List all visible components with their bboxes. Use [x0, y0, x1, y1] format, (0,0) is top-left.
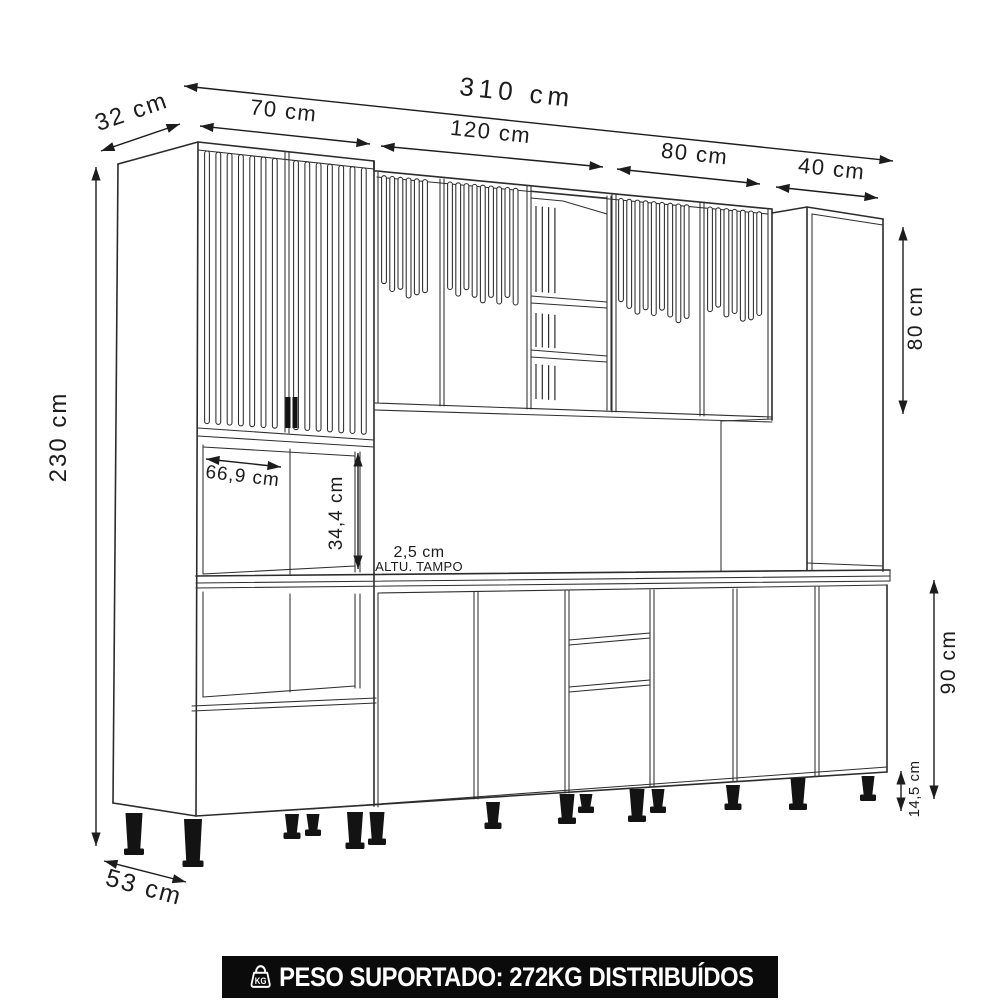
flute-slat: [272, 158, 277, 428]
flute-slat: [676, 204, 681, 323]
flute-slat: [350, 167, 355, 434]
countertop-caption: ALTU. TAMPO: [375, 559, 463, 574]
dimension-annotations: 310 cm 32 cm 70 cm 120 cm 80 cm 40 cm 23…: [45, 71, 960, 911]
cabinet-foot: [184, 819, 202, 861]
cabinet-foot-pad: [628, 816, 646, 823]
flute-slat: [261, 157, 266, 427]
cabinet-foot-pad: [485, 823, 502, 830]
flute-slat: [239, 155, 244, 426]
cabinet-foot-pad: [650, 807, 666, 814]
cabinet-foot: [560, 794, 575, 818]
cabinet-foot-pad: [789, 804, 807, 811]
dimension-label: 34,4 cm: [326, 476, 347, 551]
dimension-label: 310 cm: [458, 71, 576, 113]
flute-slat: [497, 187, 502, 304]
flute-slat: [328, 164, 333, 432]
flute-slat: [724, 209, 729, 317]
cabinet-foot: [862, 776, 875, 795]
flute-slat: [513, 188, 518, 305]
cabinet-foot-pad: [368, 839, 386, 846]
adjustable-feet: [124, 776, 876, 867]
flute-slat: [316, 163, 321, 431]
kg-icon-label: KG: [255, 976, 267, 987]
flute-slat: [732, 209, 737, 313]
dim-top-depth: 32 cm: [92, 87, 180, 151]
cabinet-foot: [126, 813, 143, 849]
cabinet-foot-pad: [558, 818, 576, 825]
flute-slat: [627, 199, 632, 308]
flute-slat: [505, 188, 510, 298]
flute-slat: [472, 184, 477, 297]
cabinet-foot-pad: [860, 795, 876, 802]
dim-total-height: 230 cm: [45, 167, 96, 846]
flute-slat: [749, 211, 754, 320]
door-handle: [293, 397, 298, 428]
cabinet-foot: [652, 789, 665, 807]
flute-slat: [716, 208, 721, 307]
flute-slat: [740, 210, 745, 321]
dimension-label: 32 cm: [92, 87, 172, 137]
flute-slat: [227, 153, 232, 425]
flute-slat: [619, 199, 624, 302]
cabinet-line-art: [113, 142, 890, 867]
dim-upper-height: 80 cm: [903, 227, 927, 414]
cabinet-foot: [791, 778, 806, 804]
flute-slat: [406, 178, 411, 298]
wall-cabinets: [374, 161, 772, 422]
dim-niche-height: 34,4 cm: [326, 453, 358, 569]
cabinet-foot: [726, 785, 740, 804]
cabinet-foot: [370, 812, 385, 839]
base-cabinets: [196, 585, 887, 816]
door-handle: [286, 397, 291, 428]
cabinet-foot: [307, 814, 320, 830]
cabinet-foot-pad: [183, 861, 204, 868]
drawer-stack: [569, 633, 650, 692]
flute-slat: [456, 183, 461, 296]
dimension-label: 80 cm: [904, 286, 927, 351]
dim-base-height: 90 cm: [934, 580, 960, 799]
cabinet-foot: [486, 802, 500, 823]
flute-slat: [708, 207, 713, 312]
cabinet-foot-pad: [305, 830, 321, 837]
dim-mid-section: 120 cm: [381, 115, 603, 167]
flute-slat: [361, 168, 366, 434]
flute-slat: [684, 205, 689, 319]
dim-base-depth: 53 cm: [103, 861, 186, 911]
flute-slat: [294, 161, 299, 430]
countertop: [196, 570, 890, 588]
flute-slat: [651, 202, 656, 316]
flute-slat: [339, 166, 344, 433]
dim-countertop: 2,5 cm ALTU. TAMPO: [375, 544, 463, 574]
flute-slat: [305, 162, 310, 431]
dim-feet-height: 14,5 cm: [901, 761, 923, 818]
dimension-label: 120 cm: [449, 115, 532, 148]
flute-slat: [635, 200, 640, 314]
flute-slat: [480, 185, 485, 303]
flute-slat: [489, 186, 494, 297]
weight-capacity-text: PESO SUPORTADO: 272KG DISTRIBUÍDOS: [279, 962, 753, 993]
cabinet-foot-pad: [578, 807, 594, 814]
flute-slat: [414, 179, 419, 295]
cabinet-foot-pad: [725, 804, 742, 811]
flute-slat: [448, 182, 453, 290]
flute-slat: [660, 202, 665, 310]
flute-slat: [423, 180, 428, 293]
lower-niche: [203, 592, 360, 697]
flute-slat: [390, 177, 395, 292]
cabinet-foot-pad: [124, 849, 144, 856]
weight-capacity-banner: KG PESO SUPORTADO: 272KG DISTRIBUÍDOS: [222, 956, 778, 998]
cabinet-foot-pad: [346, 843, 365, 850]
cabinet-foot: [285, 814, 299, 833]
cabinet-foot: [347, 812, 363, 843]
open-shelf-unit: [531, 191, 611, 410]
flute-slat: [668, 203, 673, 317]
flute-slat: [398, 177, 403, 289]
dimension-label: 14,5 cm: [906, 761, 923, 818]
flute-slat: [757, 212, 762, 316]
cabinet-foot-pad: [284, 833, 301, 840]
fluted-wall-door-pattern: [382, 176, 762, 323]
kg-weight-icon: KG: [247, 961, 275, 993]
bottom-drawer: [192, 698, 376, 711]
dim-niche-width: 66,9 cm: [204, 459, 281, 491]
cabinet-technical-drawing: 310 cm 32 cm 70 cm 120 cm 80 cm 40 cm 23…: [0, 0, 1000, 1000]
cabinet-foot: [580, 794, 593, 807]
cabinet-foot: [630, 789, 645, 816]
dim-tall-right: 40 cm: [776, 153, 878, 198]
flute-slat: [216, 152, 221, 424]
dim-left-section: 70 cm: [200, 94, 370, 144]
flute-slat: [205, 151, 210, 424]
flute-slat: [464, 184, 469, 290]
cabinet-diagram-page: 310 cm 32 cm 70 cm 120 cm 80 cm 40 cm 23…: [0, 0, 1000, 1000]
dimension-label: 230 cm: [45, 392, 72, 483]
flute-slat: [250, 156, 255, 427]
flute-slat: [382, 176, 387, 284]
flute-slat: [643, 201, 648, 310]
weight-capacity-content: KG PESO SUPORTADO: 272KG DISTRIBUÍDOS: [247, 961, 754, 993]
dimension-label: 90 cm: [937, 630, 960, 695]
